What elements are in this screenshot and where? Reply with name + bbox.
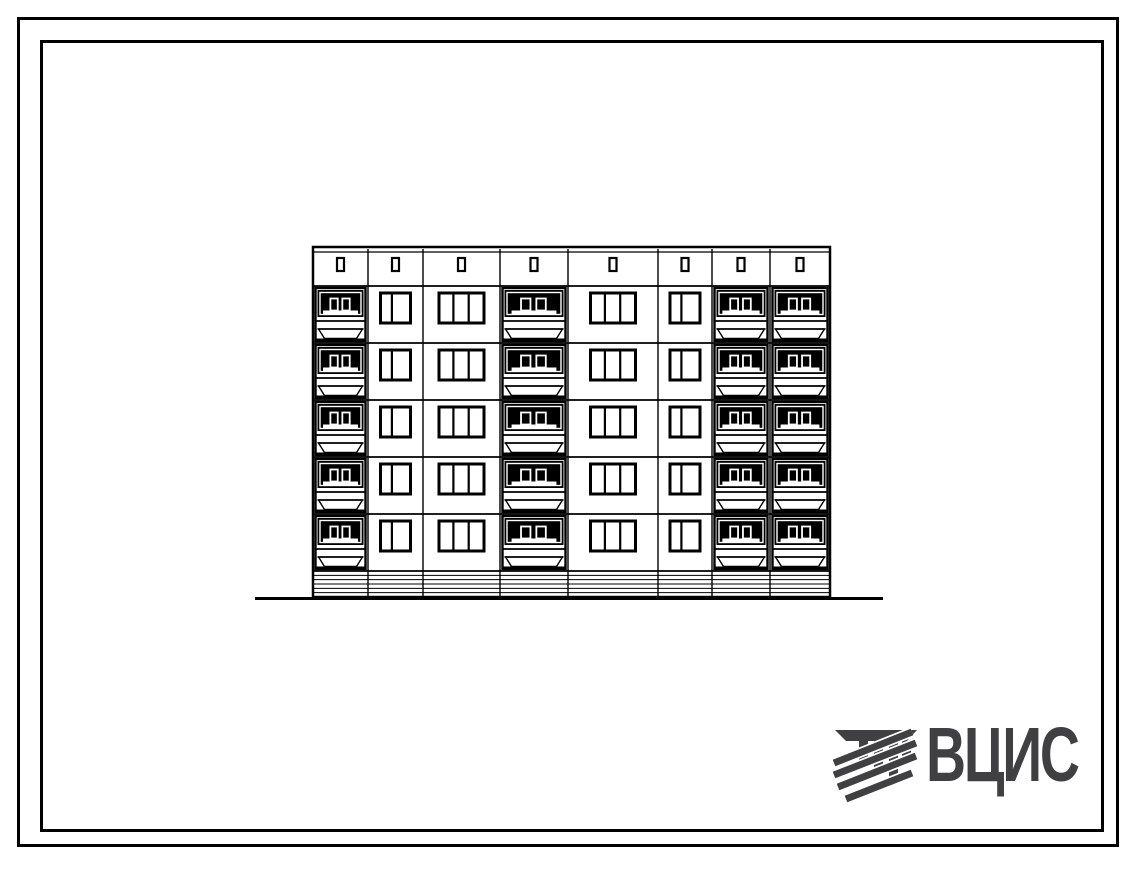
vcis-logo-text: ВЦИС: [926, 720, 1078, 790]
scanned-drawing-page: ВЦИС: [0, 0, 1139, 869]
vcis-emblem-icon: [833, 716, 919, 810]
vcis-logo: ВЦИС: [833, 716, 1137, 810]
